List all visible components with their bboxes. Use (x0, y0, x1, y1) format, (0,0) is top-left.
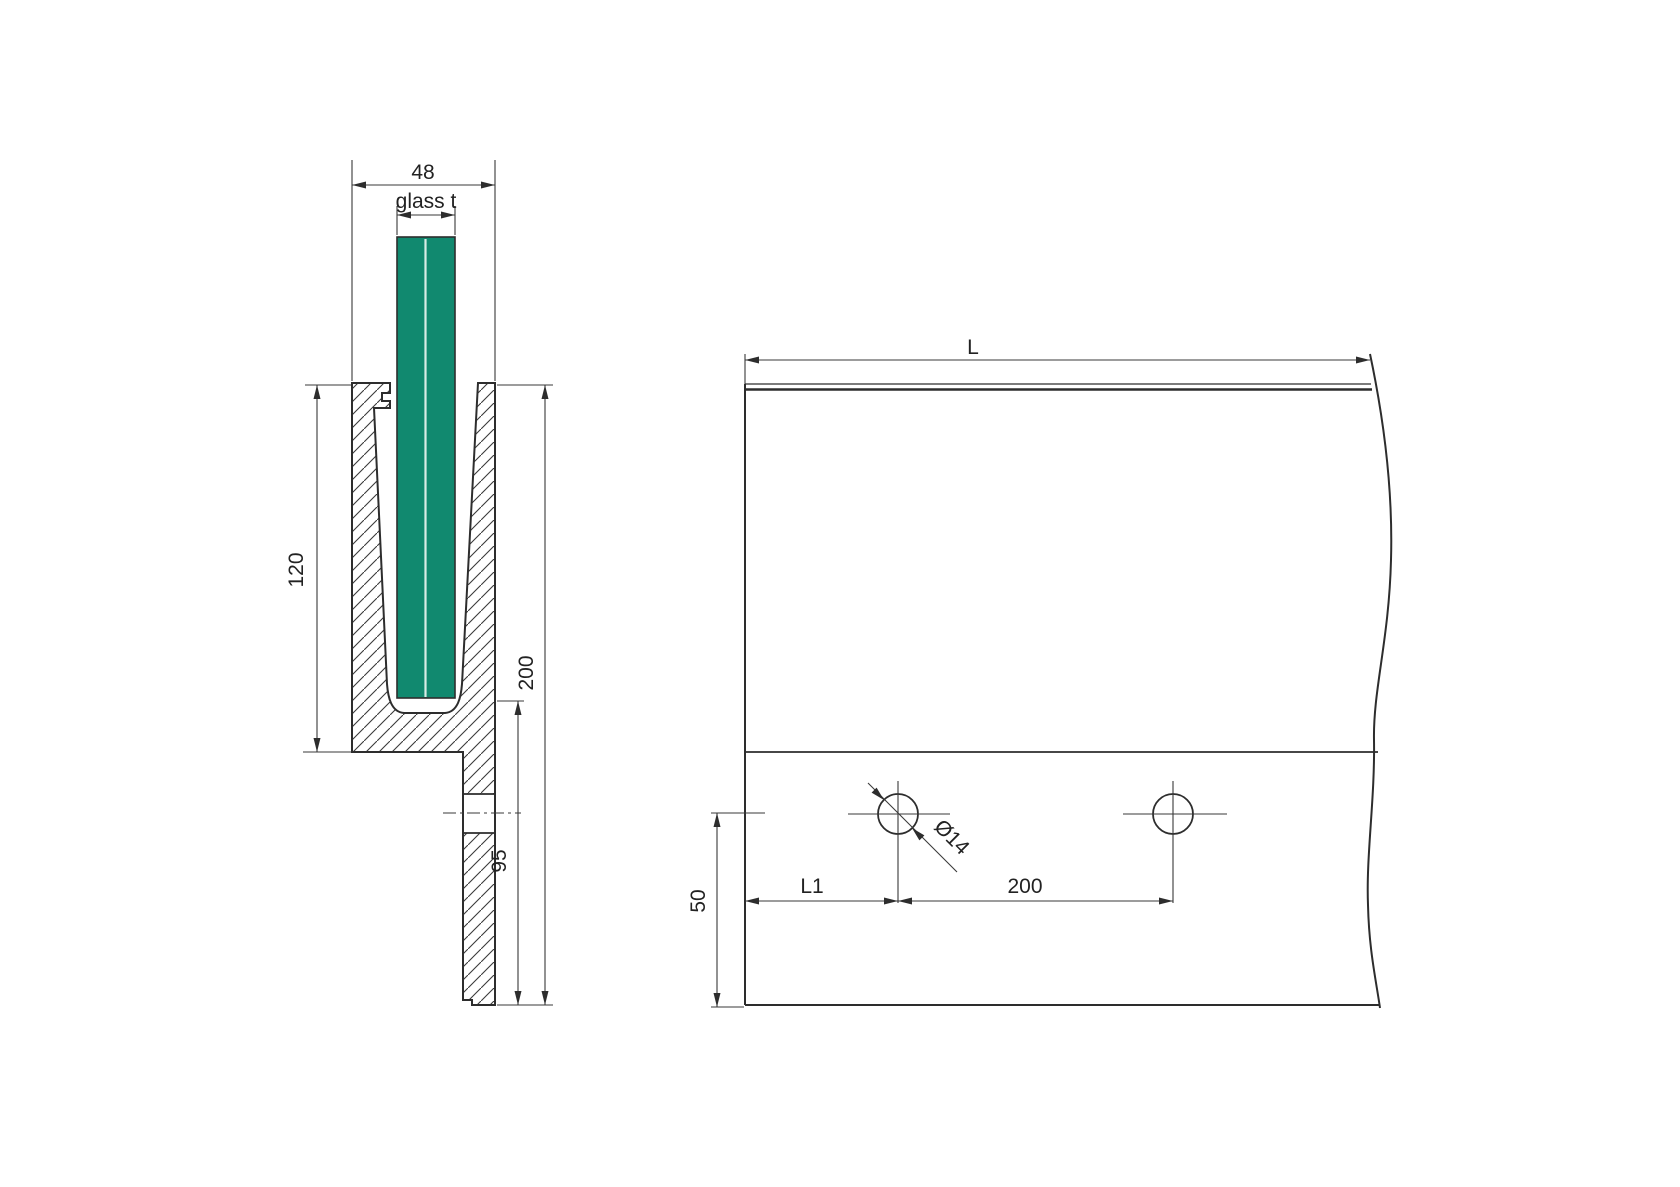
dim-48-label: 48 (411, 161, 434, 184)
dim-50-label: 50 (687, 889, 710, 912)
dim-200-height-label: 200 (515, 655, 538, 690)
dim-L-label: L (967, 336, 979, 359)
dim-50: 50 (687, 813, 765, 1007)
dim-glass-t: glass t (396, 190, 457, 219)
dim-200-height: 200 (515, 385, 549, 1005)
dim-200-spacing: 200 (898, 875, 1173, 905)
dim-48: 48 (352, 161, 495, 189)
dim-hole-diameter-label: Ø14 (929, 815, 974, 860)
technical-drawing-canvas: 48 glass t 120 95 200 (0, 0, 1680, 1187)
dim-95-label: 95 (488, 849, 511, 872)
dim-120: 120 (285, 385, 321, 752)
elevation-break-line (1368, 354, 1392, 1008)
dim-L1: L1 (745, 875, 898, 905)
dim-200-spacing-label: 200 (1007, 875, 1042, 898)
elevation-view: L Ø14 50 (687, 336, 1391, 1008)
dim-glass-t-label: glass t (396, 190, 457, 213)
hole-2 (1123, 781, 1227, 903)
hole-1 (848, 781, 950, 903)
dim-120-label: 120 (285, 552, 308, 587)
dim-L: L (745, 336, 1370, 364)
technical-drawing-page: 48 glass t 120 95 200 (0, 0, 1680, 1187)
section-view: 48 glass t 120 95 200 (285, 160, 553, 1005)
dim-L1-label: L1 (800, 875, 823, 898)
